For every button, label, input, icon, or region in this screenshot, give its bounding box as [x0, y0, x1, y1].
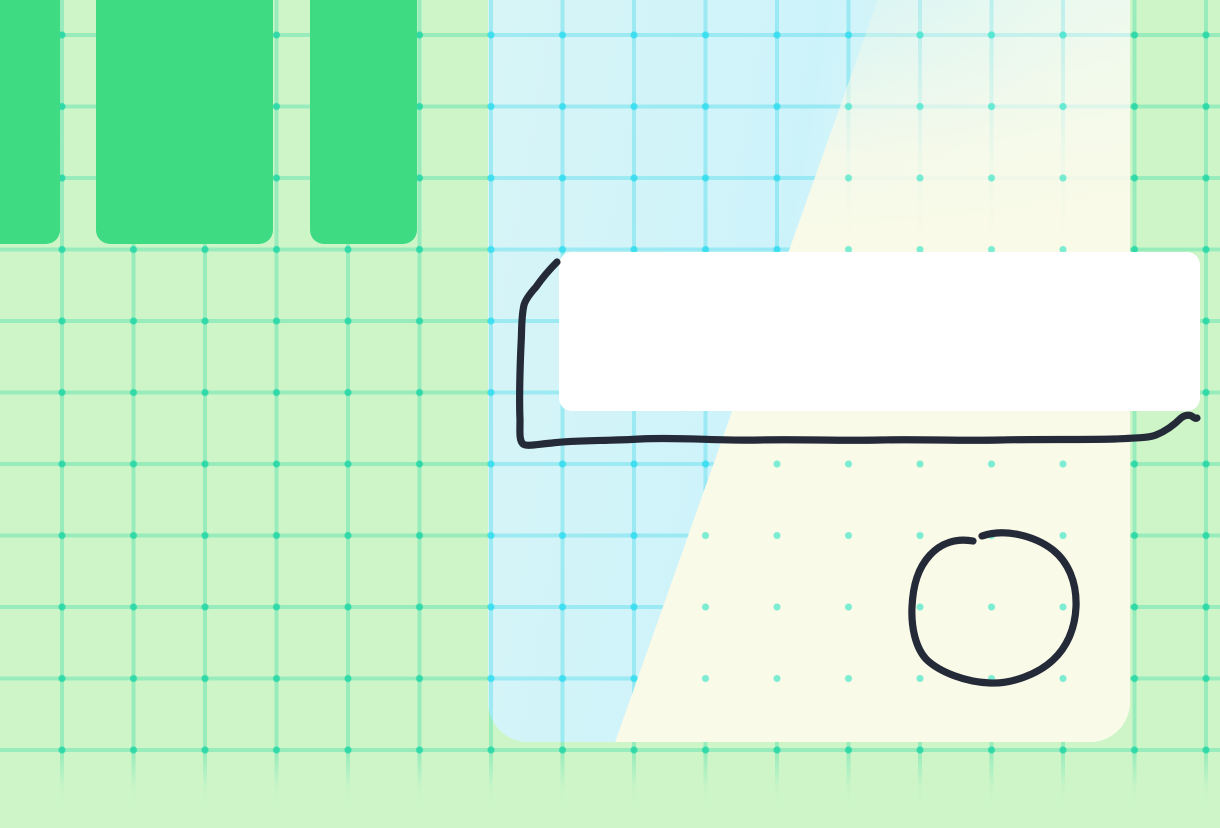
- ink-circle-scribble[interactable]: [912, 533, 1076, 683]
- ink-rect-outline[interactable]: [520, 262, 1197, 445]
- whiteboard-canvas[interactable]: [0, 0, 1220, 828]
- ink-layer: [0, 0, 1220, 828]
